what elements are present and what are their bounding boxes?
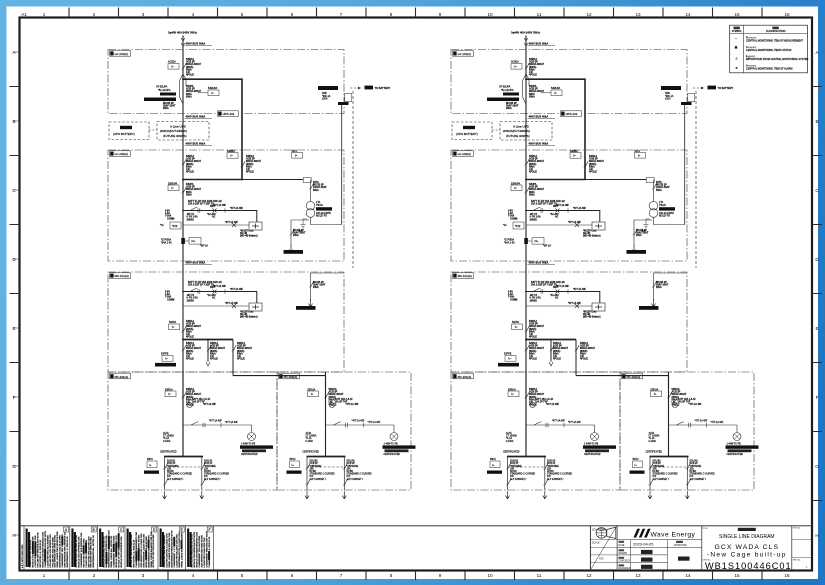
- svg-text:A1: A1: [21, 12, 27, 17]
- svg-text:PANEL LOADS 60Hz MA CHANGED: PANEL LOADS 60Hz MA CHANGED: [180, 532, 183, 567]
- svg-text:3φ4W 400-240V 50Hz: 3φ4W 400-240V 50Hz: [168, 31, 197, 35]
- svg-text:3: 3: [142, 12, 145, 17]
- svg-text:PD-101(A): PD-101(A): [115, 375, 129, 379]
- svg-text:SCALE: SCALE: [592, 542, 600, 545]
- svg-text:CENTRAL MONITORING ITEM OF ALA: CENTRAL MONITORING ITEM OF ALARM: [746, 68, 792, 71]
- svg-text:9: 9: [439, 12, 442, 17]
- svg-text:C: C: [815, 188, 819, 193]
- svg-text:10: 10: [487, 573, 493, 578]
- svg-text:5: 5: [241, 12, 244, 17]
- svg-text:H: H: [12, 533, 15, 538]
- svg-text:G: G: [815, 464, 819, 469]
- svg-text:MAINTENANCE L.S. 2023-01-30: MAINTENANCE L.S. 2023-01-30: [66, 536, 69, 568]
- svg-text:SYMBOL: SYMBOL: [732, 30, 743, 33]
- svg-text:200kVA(FUT.400kVA): 200kVA(FUT.400kVA): [160, 129, 187, 133]
- svg-text:5: 5: [241, 573, 244, 578]
- svg-text:*: *: [736, 38, 737, 41]
- svg-text:10: 10: [487, 12, 493, 17]
- svg-text:(UPS BATTERY): (UPS BATTERY): [113, 132, 135, 136]
- svg-text:CENTRAL MONITORING ITEM'S STAT: CENTRAL MONITORING ITEM'S STATUS: [746, 49, 792, 52]
- svg-text:1: 1: [43, 12, 46, 17]
- svg-text:A B C-NOTE DATE DWG: A B C-NOTE DATE DWG: [21, 544, 24, 568]
- svg-text:E: E: [12, 326, 15, 331]
- svg-text:75kVA: 75kVA: [316, 204, 323, 207]
- svg-text:52FPB: 52FPB: [161, 353, 169, 356]
- svg-text:MAINTENANCE BAL. NOTED OK: MAINTENANCE BAL. NOTED OK: [92, 535, 95, 568]
- svg-text:*MT-2A: *MT-2A: [200, 245, 208, 248]
- svg-text:6: 6: [291, 12, 294, 17]
- svg-text:F: F: [13, 395, 16, 400]
- svg-text:LC-101(A): LC-101(A): [115, 52, 128, 56]
- svg-text:9: 9: [439, 573, 442, 578]
- svg-text:-New Cage built-up: -New Cage built-up: [707, 551, 787, 558]
- svg-text:*52-1/2UPA: *52-1/2UPA: [158, 89, 171, 92]
- svg-text:NOTICE OF REV 2023-04-05 DWG: NOTICE OF REV 2023-04-05 DWG: [152, 534, 155, 567]
- svg-text:F: F: [816, 395, 819, 400]
- svg-text:6: 6: [291, 573, 294, 578]
- svg-text:F: F: [209, 528, 211, 532]
- svg-text:CLASSIFICATION: CLASSIFICATION: [766, 30, 786, 33]
- svg-text:TITLE: TITLE: [702, 528, 708, 530]
- svg-text:SGN. DE MG: SGN. DE MG: [592, 530, 606, 532]
- svg-text:I>: I>: [295, 154, 298, 158]
- svg-text:2: 2: [93, 12, 96, 17]
- svg-text:400V BUS 60kA: 400V BUS 60kA: [186, 142, 206, 146]
- svg-text:13: 13: [635, 573, 641, 578]
- svg-text:LC-102(A): LC-102(A): [115, 152, 128, 156]
- svg-text:3: 3: [142, 573, 145, 578]
- svg-text:A: A: [815, 50, 819, 55]
- svg-text:8: 8: [390, 573, 393, 578]
- svg-text:400V BUS 60kA: 400V BUS 60kA: [186, 261, 206, 265]
- svg-text:2023-04-05: 2023-04-05: [633, 541, 654, 546]
- svg-text:IMPORTATION FROM CENTRAL MONIT: IMPORTATION FROM CENTRAL MONITORING SYST…: [746, 58, 808, 61]
- svg-text:D: D: [815, 257, 819, 262]
- svg-text:E: E: [815, 326, 818, 331]
- svg-text:12: 12: [586, 12, 592, 17]
- svg-text:4: 4: [192, 573, 195, 578]
- svg-text:16: 16: [784, 573, 790, 578]
- svg-text:SHT. No.: SHT. No.: [793, 528, 801, 530]
- svg-text:CHECKED: CHECKED: [619, 561, 631, 563]
- svg-text:7: 7: [340, 573, 343, 578]
- svg-text:B: B: [815, 119, 818, 124]
- svg-text:APPROVED: APPROVED: [674, 544, 687, 547]
- svg-text:400V BUS 60kA: 400V BUS 60kA: [186, 115, 206, 119]
- svg-text:REV. No.: REV. No.: [793, 559, 801, 561]
- svg-text:ACB1A: ACB1A: [168, 61, 176, 64]
- svg-text:DESIGNED: DESIGNED: [619, 568, 631, 570]
- svg-text:UPS-101: UPS-101: [223, 112, 235, 116]
- svg-text:15: 15: [734, 573, 740, 578]
- svg-text:14: 14: [685, 573, 691, 578]
- svg-text:I4+: I4+: [192, 239, 196, 243]
- svg-text:H: H: [815, 533, 818, 538]
- svg-text:16: 16: [784, 12, 790, 17]
- svg-text:2: 2: [93, 573, 96, 578]
- svg-text:◎: ◎: [736, 66, 738, 69]
- svg-text:SINGLE LINE DIAGRAM: SINGLE LINE DIAGRAM: [719, 534, 775, 540]
- svg-text:DRAWN: DRAWN: [619, 552, 628, 555]
- svg-text:G: G: [12, 464, 16, 469]
- svg-text:15: 15: [734, 12, 740, 17]
- svg-text:MC-101(A): MC-101(A): [115, 274, 129, 278]
- svg-text:A Line UPS: A Line UPS: [170, 125, 186, 129]
- svg-text:GCX WADA CLS: GCX WADA CLS: [714, 544, 779, 551]
- svg-text:NTS: NTS: [599, 559, 604, 561]
- svg-text:7: 7: [340, 12, 343, 17]
- svg-text:WB1S100446C01: WB1S100446C01: [705, 561, 792, 571]
- svg-text:11: 11: [537, 12, 542, 17]
- svg-text:TO BATTERY: TO BATTERY: [375, 87, 391, 90]
- svg-text:△: △: [736, 57, 738, 60]
- svg-text:11: 11: [537, 573, 542, 578]
- svg-text:400V BUS 60kA: 400V BUS 60kA: [186, 42, 206, 46]
- svg-text:DATE: DATE: [619, 544, 625, 547]
- svg-text:8: 8: [390, 12, 393, 17]
- svg-text:13: 13: [635, 12, 641, 17]
- svg-text:*103: *103: [172, 224, 178, 228]
- svg-text:CENTRAL MONITORING ITEM OF MEA: CENTRAL MONITORING ITEM OF MEASUREMENT: [746, 39, 803, 42]
- svg-text:12: 12: [586, 573, 592, 578]
- svg-text:1: 1: [43, 573, 46, 578]
- svg-text:*84A 1-5A: *84A 1-5A: [161, 242, 172, 245]
- svg-text:MODULE CHG APPENDIX II-Wb: MODULE CHG APPENDIX II-Wb: [120, 536, 123, 568]
- svg-text:100A: 100A: [322, 98, 328, 101]
- svg-text:MOLD-TR: MOLD-TR: [316, 215, 327, 218]
- svg-text:Wave Energy: Wave Energy: [651, 531, 696, 538]
- svg-text:*1C: *1C: [160, 225, 164, 227]
- svg-text:B: B: [12, 119, 15, 124]
- svg-text:4: 4: [192, 12, 195, 17]
- svg-text:14: 14: [685, 12, 691, 17]
- svg-text:(FUTURE 400kVA): (FUTURE 400kVA): [163, 134, 187, 138]
